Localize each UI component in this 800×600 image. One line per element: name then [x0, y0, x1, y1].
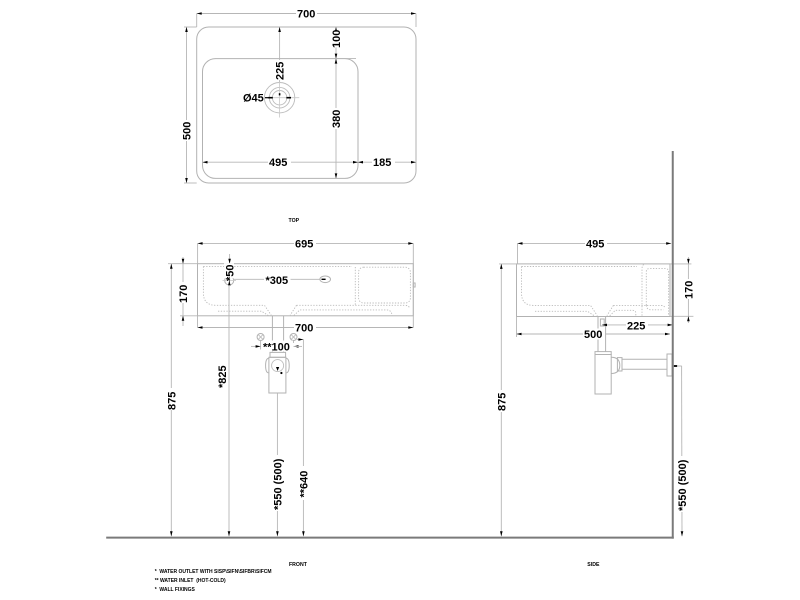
svg-text:Ø45: Ø45: [243, 93, 264, 105]
svg-text:TOP: TOP: [289, 218, 300, 224]
svg-text:185: 185: [373, 157, 391, 169]
svg-text:170: 170: [178, 285, 190, 303]
svg-text:700: 700: [297, 9, 315, 21]
svg-text:500: 500: [584, 329, 602, 341]
svg-text:495: 495: [586, 238, 604, 250]
svg-text:695: 695: [295, 238, 313, 250]
svg-text:495: 495: [269, 157, 287, 169]
svg-text:** WATER INLET (HOT-COLD): ** WATER INLET (HOT-COLD): [155, 578, 226, 584]
svg-text:**640: **640: [298, 471, 310, 498]
svg-text:* WALL FIXINGS: * WALL FIXINGS: [155, 587, 196, 593]
svg-text:*550 (500): *550 (500): [677, 459, 689, 511]
svg-text:*305: *305: [266, 275, 289, 287]
svg-text:*825: *825: [217, 365, 229, 388]
svg-text:*50: *50: [224, 264, 236, 281]
svg-text:225: 225: [275, 62, 287, 80]
svg-text:875: 875: [496, 393, 508, 411]
svg-text:**100: **100: [263, 341, 290, 353]
svg-text:500: 500: [182, 122, 194, 140]
svg-text:225: 225: [627, 320, 645, 332]
svg-text:*550 (500): *550 (500): [272, 458, 284, 510]
svg-text:170: 170: [683, 281, 695, 299]
svg-text:FRONT: FRONT: [289, 562, 308, 568]
svg-text:875: 875: [166, 392, 178, 410]
svg-text:100: 100: [331, 30, 343, 48]
svg-text:380: 380: [331, 110, 343, 128]
svg-text:* WATER OUTLET WITH SISP\SIFN: * WATER OUTLET WITH SISP\SIFN\SIFBR\SIFC…: [155, 569, 272, 575]
svg-text:SIDE: SIDE: [587, 562, 600, 568]
svg-text:700: 700: [295, 323, 313, 335]
